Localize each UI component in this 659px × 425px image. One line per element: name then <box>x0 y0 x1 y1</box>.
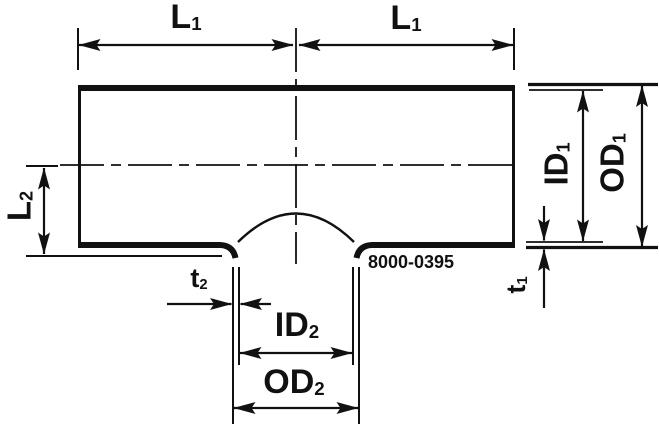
label-l2-base: L <box>0 201 37 221</box>
label-id1-sub: 1 <box>554 142 574 152</box>
label-t1-sub: 1 <box>515 276 531 284</box>
label-l1-right: L1 <box>390 1 421 35</box>
label-l1-left-sub: 1 <box>191 13 201 34</box>
label-t2: t2 <box>190 265 207 293</box>
label-l1-right-base: L <box>390 0 411 37</box>
label-od1-sub: 1 <box>610 133 630 143</box>
centerlines <box>60 28 514 264</box>
label-l1-left: L1 <box>170 0 201 34</box>
label-id1-base: ID <box>537 153 574 186</box>
label-id2-sub: 2 <box>309 321 319 342</box>
label-id1: ID1 <box>539 142 572 185</box>
label-t2-sub: 2 <box>199 277 207 293</box>
label-l1-right-sub: 1 <box>411 14 421 35</box>
label-od2-base: OD <box>263 363 314 401</box>
label-l1-left-base: L <box>170 0 191 36</box>
label-t1-base: t <box>501 285 531 294</box>
label-od2: OD2 <box>263 365 324 399</box>
label-id2: ID2 <box>275 308 319 342</box>
label-od1-base: OD <box>593 143 630 193</box>
tee-fitting-drawing: L1 L1 L2 ID1 OD1 t1 t2 ID2 OD2 8000-0395 <box>0 0 659 425</box>
label-l2: L2 <box>2 191 35 221</box>
label-od1: OD1 <box>595 133 628 193</box>
label-t1: t1 <box>503 276 531 293</box>
part-number: 8000-0395 <box>368 253 454 271</box>
label-od2-sub: 2 <box>314 378 324 399</box>
tee-cross-section-linework <box>0 0 659 425</box>
label-id2-base: ID <box>275 306 309 344</box>
label-l2-sub: 2 <box>17 191 37 201</box>
dimension-lines <box>44 45 642 408</box>
label-t2-base: t <box>190 263 199 293</box>
